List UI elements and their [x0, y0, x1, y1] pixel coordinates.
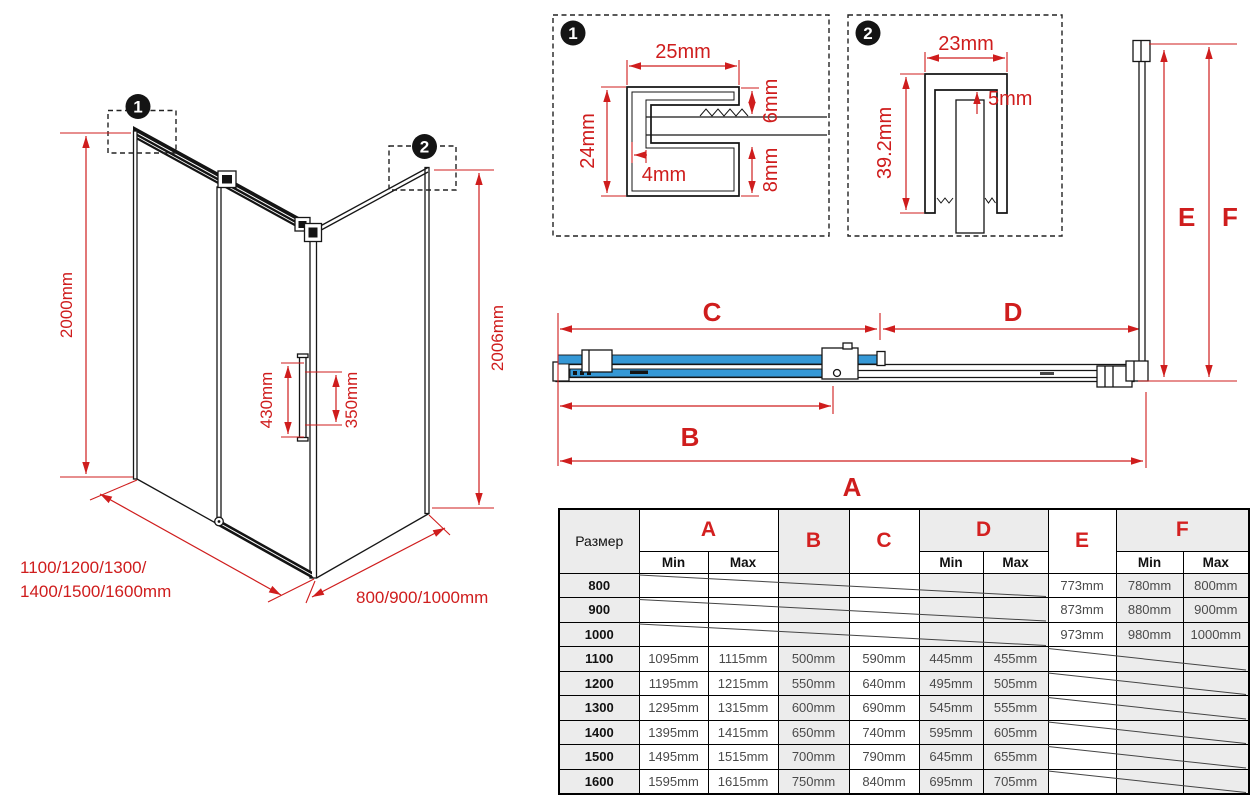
cell: [1116, 720, 1183, 745]
cell: 1095mm: [639, 647, 708, 672]
cell: 1000: [559, 622, 639, 647]
gasket-1: [700, 109, 748, 116]
gasket-right: [985, 198, 996, 203]
plan-c-label: C: [703, 297, 722, 327]
detail1-lip-label: 4mm: [642, 164, 686, 186]
cell: 505mm: [983, 671, 1048, 696]
col-header-b: B: [778, 509, 849, 573]
cell: [778, 598, 849, 623]
cell: 550mm: [778, 671, 849, 696]
detail1-width-label: 25mm: [655, 41, 711, 63]
a-min-header: Min: [639, 551, 708, 573]
detail1-bottom-offset-label: 8mm: [760, 148, 782, 192]
cell: [849, 622, 919, 647]
cell: 645mm: [919, 745, 983, 770]
cell: [1116, 671, 1183, 696]
detail1-height-label: 24mm: [577, 113, 599, 169]
cell: 1215mm: [708, 671, 778, 696]
plan-a-label: A: [843, 472, 862, 502]
front-widths-line2: 1400/1500/1600mm: [20, 582, 171, 601]
corner-connector: [305, 224, 322, 242]
cell: [919, 573, 983, 598]
cell: [708, 573, 778, 598]
cell: 873mm: [1048, 598, 1116, 623]
cell: [849, 598, 919, 623]
technical-drawing-page: 1 2 2000mm 2006mm 430mm 350mm 1100/1200/…: [0, 0, 1250, 800]
cell: 780mm: [1116, 573, 1183, 598]
cell: 1115mm: [708, 647, 778, 672]
cell: 545mm: [919, 696, 983, 721]
cell: [983, 598, 1048, 623]
cell: 980mm: [1116, 622, 1183, 647]
plan-f-label: F: [1222, 202, 1238, 232]
cell: [1183, 671, 1249, 696]
cell: 1300: [559, 696, 639, 721]
cell: 1000mm: [1183, 622, 1249, 647]
front-widths-line1: 1100/1200/1300/: [20, 558, 147, 577]
cell: [1048, 769, 1116, 794]
cell: 455mm: [983, 647, 1048, 672]
detail2-gap-label: 5mm: [988, 88, 1032, 110]
cell: 790mm: [849, 745, 919, 770]
left-stile: [134, 131, 138, 479]
table-row: 1300 1295mm1315mm 600mm690mm 545mm555mm: [559, 696, 1249, 721]
cell: [639, 622, 708, 647]
table-row: 1500 1495mm1515mm 700mm790mm 645mm655mm: [559, 745, 1249, 770]
cell: 1515mm: [708, 745, 778, 770]
table-row: 1400 1395mm1415mm 650mm740mm 595mm605mm: [559, 720, 1249, 745]
cell: 800mm: [1183, 573, 1249, 598]
cell: 1495mm: [639, 745, 708, 770]
cell: 640mm: [849, 671, 919, 696]
f-max-header: Max: [1183, 551, 1249, 573]
handle-outer-label: 430mm: [257, 372, 276, 429]
cell: 800: [559, 573, 639, 598]
col-header-a: A: [639, 509, 778, 551]
cell: 1100: [559, 647, 639, 672]
door-stile: [217, 187, 221, 522]
cell: [1048, 696, 1116, 721]
col-header-f: F: [1116, 509, 1249, 551]
detail2-number: 2: [863, 24, 872, 43]
cell: [1116, 769, 1183, 794]
cell: [1048, 745, 1116, 770]
track-left-cap: [553, 362, 569, 381]
detail2-height-label: 39.2mm: [874, 107, 896, 179]
cell: 495mm: [919, 671, 983, 696]
cell: 1600: [559, 769, 639, 794]
cell: 1615mm: [708, 769, 778, 794]
cell: [639, 598, 708, 623]
cell: [1048, 671, 1116, 696]
cell: 500mm: [778, 647, 849, 672]
door-end-hook: [877, 352, 885, 366]
cell: 1200: [559, 671, 639, 696]
cell: [1183, 769, 1249, 794]
cell: [1183, 720, 1249, 745]
cell: [1116, 696, 1183, 721]
cell: 650mm: [778, 720, 849, 745]
cell: 1195mm: [639, 671, 708, 696]
table-row: 800 773mm 780mm800mm: [559, 573, 1249, 598]
cell: 705mm: [983, 769, 1048, 794]
handle-inner-label: 350mm: [342, 372, 361, 429]
cell: [778, 573, 849, 598]
cell: 1295mm: [639, 696, 708, 721]
detail2-width-label: 23mm: [938, 33, 994, 55]
cell: [1048, 647, 1116, 672]
table-row: 1100 1095mm1115mm 500mm590mm 445mm455mm: [559, 647, 1249, 672]
cell: 773mm: [1048, 573, 1116, 598]
cell: 600mm: [778, 696, 849, 721]
detail-2: 2 23mm 5mm 39.2mm: [848, 15, 1062, 236]
cell: 973mm: [1048, 622, 1116, 647]
cell: 740mm: [849, 720, 919, 745]
cell: 555mm: [983, 696, 1048, 721]
roller-block-1: [218, 171, 236, 188]
side-panel-bottom-bracket: [1126, 361, 1148, 381]
cell: [708, 598, 778, 623]
cell: 605mm: [983, 720, 1048, 745]
d-min-header: Min: [919, 551, 983, 573]
cell: [849, 573, 919, 598]
cell: 700mm: [778, 745, 849, 770]
height-left-label: 2000mm: [57, 272, 76, 338]
cell: [983, 622, 1048, 647]
corner-post: [310, 228, 317, 578]
side-panel-plan: [1139, 44, 1145, 380]
cell: 1395mm: [639, 720, 708, 745]
cell: 900mm: [1183, 598, 1249, 623]
cell: [778, 622, 849, 647]
cell: [983, 573, 1048, 598]
table-row: 1600 1595mm1615mm 750mm840mm 695mm705mm: [559, 769, 1249, 794]
table-row: 900 873mm 880mm900mm: [559, 598, 1249, 623]
cell: 595mm: [919, 720, 983, 745]
col-header-c: C: [849, 509, 919, 573]
cell: 1595mm: [639, 769, 708, 794]
cell: 695mm: [919, 769, 983, 794]
cell: 445mm: [919, 647, 983, 672]
cell: 1400: [559, 720, 639, 745]
cell: [1183, 696, 1249, 721]
roller-carriage-plan: [822, 343, 858, 379]
cell: [639, 573, 708, 598]
cell: [919, 598, 983, 623]
table-row: 1000 973mm 980mm1000mm: [559, 622, 1249, 647]
cell: 655mm: [983, 745, 1048, 770]
door-handle: [298, 354, 309, 441]
side-widths-label: 800/900/1000mm: [356, 588, 488, 607]
plan-b-label: B: [681, 422, 700, 452]
detail-1: 1 25mm 24mm 4mm 6mm 8mm: [553, 15, 829, 236]
f-min-header: Min: [1116, 551, 1183, 573]
col-header-e: E: [1048, 509, 1116, 573]
isometric-view: 1 2 2000mm 2006mm 430mm 350mm 1100/1200/…: [20, 94, 507, 607]
cell: [1183, 647, 1249, 672]
cell: 900: [559, 598, 639, 623]
cell: 1500: [559, 745, 639, 770]
cell: 690mm: [849, 696, 919, 721]
height-right-label: 2006mm: [488, 305, 507, 371]
cell: [1048, 720, 1116, 745]
d-max-header: Max: [983, 551, 1048, 573]
detail1-number: 1: [568, 24, 577, 43]
col-header-d: D: [919, 509, 1048, 551]
cell: [1116, 647, 1183, 672]
cell: 750mm: [778, 769, 849, 794]
size-table: Размер A B C D E F Min Max Min Max Min M…: [558, 508, 1250, 795]
cell: [919, 622, 983, 647]
cell: 1315mm: [708, 696, 778, 721]
cell: 1415mm: [708, 720, 778, 745]
glass-panel: [956, 100, 984, 233]
detail1-top-offset-label: 6mm: [760, 79, 782, 123]
cell: [1183, 745, 1249, 770]
side-stile: [425, 168, 429, 514]
callout2-number: 2: [420, 138, 429, 157]
cell: 840mm: [849, 769, 919, 794]
table-row: 1200 1195mm1215mm 550mm640mm 495mm505mm: [559, 671, 1249, 696]
plan-e-label: E: [1178, 202, 1195, 232]
callout1-number: 1: [133, 98, 142, 117]
cell: [1116, 745, 1183, 770]
cell: 880mm: [1116, 598, 1183, 623]
cell: 590mm: [849, 647, 919, 672]
plan-d-label: D: [1004, 297, 1023, 327]
wall-profile-plan: [582, 350, 612, 372]
col-header-size: Размер: [559, 509, 639, 573]
side-bottom-edge: [317, 514, 430, 579]
a-max-header: Max: [708, 551, 778, 573]
cell: [708, 622, 778, 647]
gasket-left: [937, 198, 953, 203]
